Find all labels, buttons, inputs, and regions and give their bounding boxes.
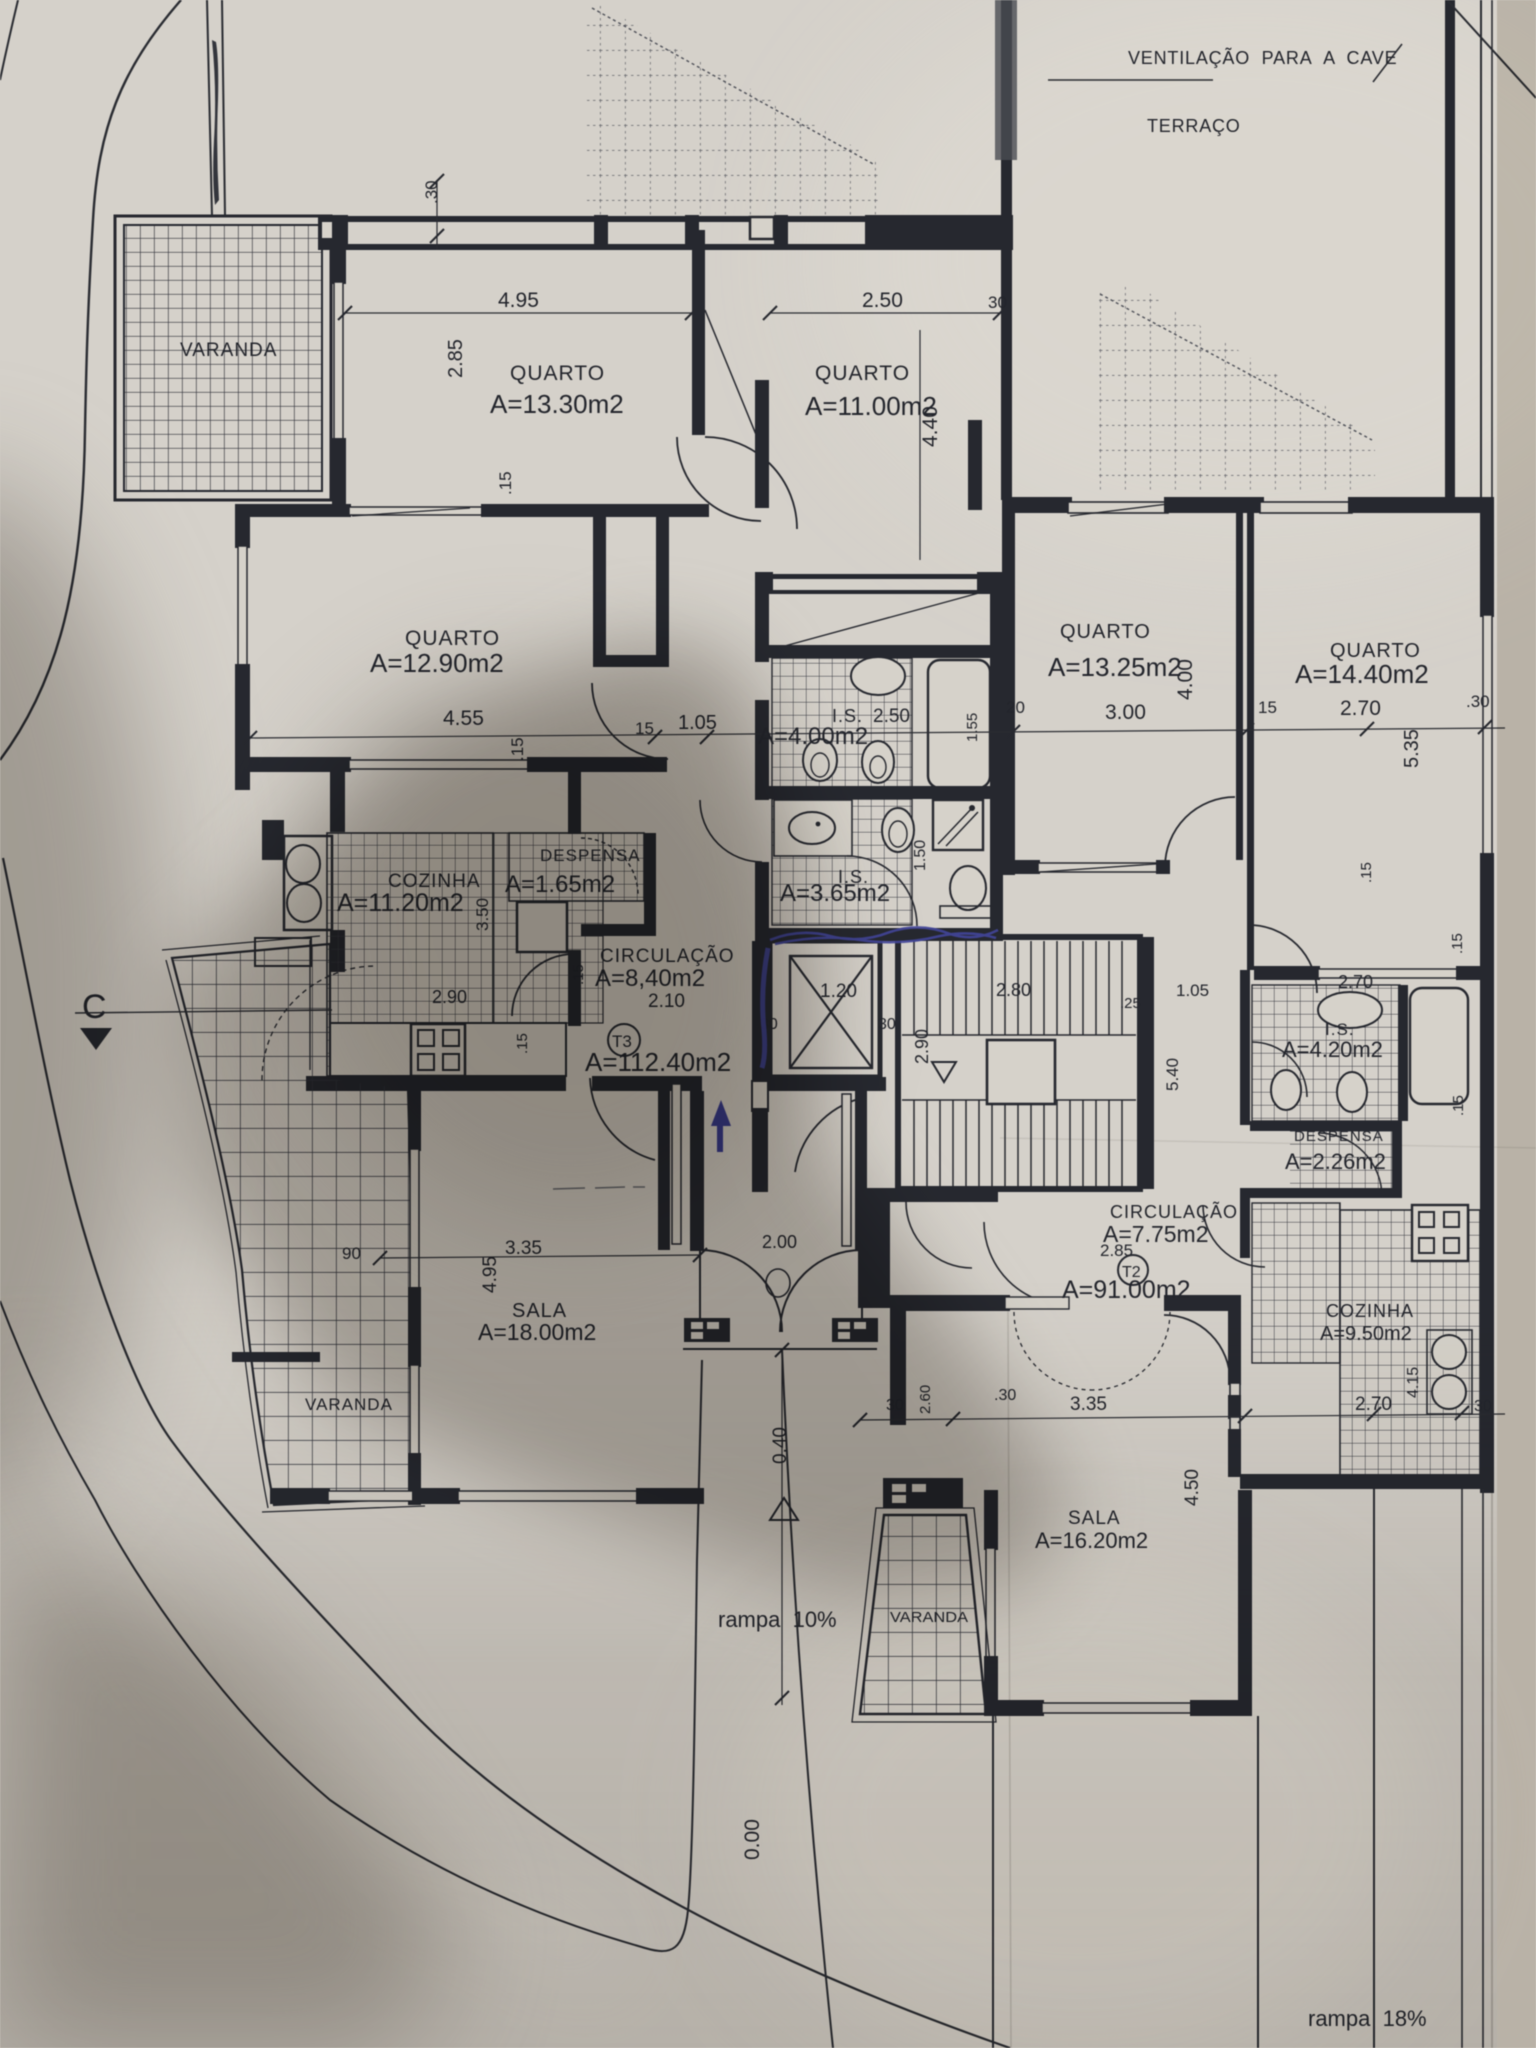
svg-text:.30: .30 [1466, 692, 1490, 711]
svg-text:1.20: 1.20 [820, 981, 857, 1002]
svg-text:4.95: 4.95 [498, 289, 539, 312]
svg-text:A=2.26m2: A=2.26m2 [1285, 1149, 1386, 1174]
svg-text:A=13.30m2: A=13.30m2 [490, 389, 624, 419]
svg-text:2.50: 2.50 [873, 706, 910, 727]
svg-text:30: 30 [988, 293, 1007, 312]
svg-text:30: 30 [878, 1016, 896, 1033]
svg-text:A=4.00m2: A=4.00m2 [758, 723, 868, 750]
svg-text:.15: .15 [1449, 933, 1466, 954]
svg-text:CIRCULAÇÃO: CIRCULAÇÃO [1110, 1201, 1238, 1222]
svg-text:.15: .15 [1450, 1095, 1467, 1116]
svg-text:5.40: 5.40 [1163, 1058, 1182, 1091]
svg-text:4.40: 4.40 [919, 406, 942, 447]
svg-text:A=11.00m2: A=11.00m2 [805, 391, 937, 421]
svg-text:.25: .25 [1120, 995, 1141, 1012]
svg-text:2.70: 2.70 [1338, 972, 1373, 992]
svg-text:A=4.20m2: A=4.20m2 [1282, 1037, 1383, 1062]
svg-text:VARANDA: VARANDA [180, 340, 277, 361]
svg-text:3.00: 3.00 [1105, 701, 1146, 724]
svg-text:QUARTO: QUARTO [510, 362, 605, 385]
svg-text:4.00: 4.00 [1174, 659, 1197, 700]
svg-text:1.55: 1.55 [964, 713, 981, 742]
svg-text:1.50: 1.50 [912, 840, 929, 871]
svg-text:.30: .30 [422, 180, 441, 204]
svg-text:.15: .15 [1358, 862, 1375, 883]
svg-text:2.85: 2.85 [445, 339, 467, 378]
svg-text:.15: .15 [496, 471, 515, 495]
svg-text:VENTILAÇÃO PARA A CAVE: VENTILAÇÃO PARA A CAVE [1128, 47, 1397, 68]
svg-text:2.50: 2.50 [862, 289, 903, 312]
svg-text:QUARTO: QUARTO [1060, 621, 1151, 643]
svg-text:5.35: 5.35 [1401, 729, 1423, 768]
svg-text:A=14.40m2: A=14.40m2 [1295, 659, 1429, 689]
svg-text:1.05: 1.05 [1176, 981, 1209, 1000]
svg-text:15: 15 [1258, 698, 1277, 717]
svg-text:20: 20 [1006, 698, 1025, 717]
svg-text:QUARTO: QUARTO [815, 362, 910, 385]
svg-text:2.85: 2.85 [1100, 1241, 1133, 1260]
svg-text:2.80: 2.80 [996, 980, 1031, 1000]
svg-text:QUARTO: QUARTO [405, 627, 500, 650]
svg-text:A=13.25m2: A=13.25m2 [1048, 652, 1182, 682]
svg-text:2.90: 2.90 [912, 1029, 932, 1064]
svg-text:DESPENSA: DESPENSA [1294, 1128, 1384, 1145]
svg-text:2.70: 2.70 [1340, 697, 1381, 720]
svg-text:TERRAÇO: TERRAÇO [1147, 116, 1241, 136]
